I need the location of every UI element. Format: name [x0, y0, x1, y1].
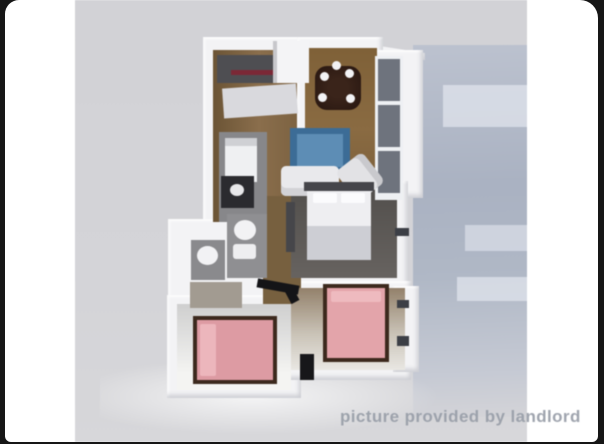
- bed-white: [307, 188, 371, 260]
- photo-frame: { "watermark": { "text": "picture provid…: [0, 0, 604, 444]
- watermark-text: picture provided by landlord: [340, 407, 598, 431]
- pillow: [341, 193, 365, 203]
- dresser-gray: [190, 282, 242, 308]
- headboard: [304, 182, 374, 191]
- wall-shadow-panel: [413, 45, 527, 417]
- dresser-dark: [286, 202, 295, 252]
- listing-photo: picture provided by landlord: [5, 0, 598, 442]
- toilet: [197, 246, 218, 265]
- window-nick: [397, 336, 409, 346]
- place-setting-dot: [320, 72, 329, 81]
- bed-pink-horizontal: [193, 316, 277, 384]
- refrigerator: [273, 41, 309, 83]
- shadow-band: [443, 85, 527, 127]
- place-setting-dot: [346, 94, 355, 103]
- entry-door-dark: [300, 354, 314, 380]
- dining-table: [315, 66, 361, 110]
- place-setting-dot: [318, 93, 327, 102]
- shadow-band: [457, 277, 527, 301]
- sink-basin: [230, 184, 244, 196]
- blanket: [307, 226, 371, 260]
- pillow: [200, 324, 216, 376]
- pillow: [331, 291, 381, 302]
- toilet: [234, 220, 256, 240]
- shadow-band: [465, 225, 527, 251]
- bathroom-vanity: [221, 176, 254, 208]
- kitchen-island-counter: [222, 83, 298, 118]
- sofa-cushion: [297, 134, 343, 167]
- bathroom-sink: [233, 244, 256, 259]
- bed-pink-vertical: [323, 284, 389, 362]
- window-nick: [395, 228, 409, 236]
- floorplan-render: picture provided by landlord: [5, 0, 598, 442]
- pillow: [313, 193, 337, 203]
- place-setting-dot: [332, 61, 341, 70]
- place-setting-dot: [345, 69, 354, 78]
- window-nick: [397, 300, 409, 308]
